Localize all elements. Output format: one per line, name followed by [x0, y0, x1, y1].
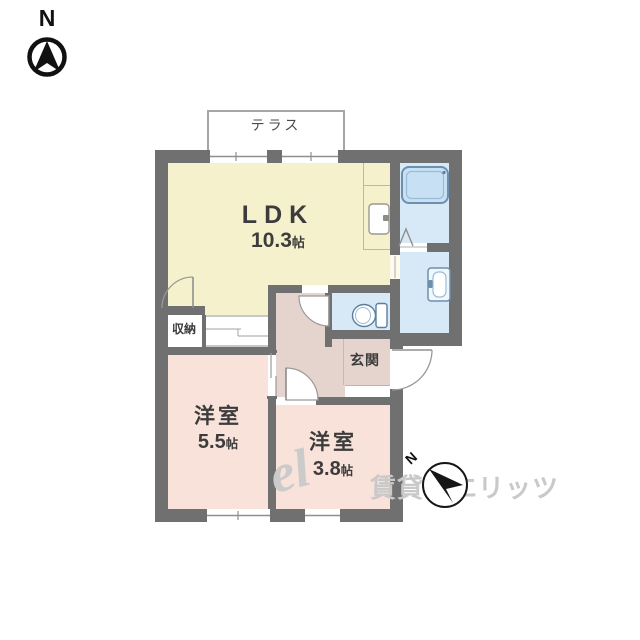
- washroom-floor: [400, 252, 449, 333]
- ldk-size: 10.3帖: [168, 229, 388, 252]
- compass-north-icon: [30, 40, 65, 75]
- wall-segment: [316, 397, 390, 405]
- wall-segment: [155, 150, 462, 163]
- sliding-closet: [206, 315, 268, 347]
- wall-segment: [155, 306, 205, 315]
- storage-label: 収納: [164, 323, 204, 336]
- ldk-size-value: 10.3: [251, 229, 292, 252]
- floor-plan: テラス el 賃貸のエリッツ: [0, 0, 640, 640]
- wall-segment: [427, 243, 449, 252]
- bedroom-right-size-value: 3.8: [313, 458, 341, 480]
- bedroom-right-size-unit: 帖: [341, 464, 353, 478]
- bedroom-left-label: 洋室: [168, 405, 268, 428]
- wall-segment: [268, 285, 276, 353]
- bedroom-right-size: 3.8帖: [276, 458, 390, 480]
- toilet-floor: [332, 293, 390, 330]
- bedroom-left-size-value: 5.5: [198, 431, 226, 453]
- bathroom-floor: [400, 163, 449, 243]
- bedroom-left-size-unit: 帖: [226, 437, 238, 451]
- compass-secondary-north-label: N: [402, 449, 420, 468]
- kitchen-counter-line: [363, 185, 390, 186]
- compass-north-label: N: [31, 5, 63, 32]
- terrace-label: テラス: [207, 118, 345, 133]
- wall-segment: [155, 509, 403, 522]
- front-door-arc: [390, 349, 432, 390]
- bedroom-left-size: 5.5帖: [168, 431, 268, 453]
- entrance-label: 玄関: [338, 353, 392, 368]
- wall-segment: [155, 347, 276, 355]
- watermark-text: 賃貸のエリッツ: [370, 468, 559, 505]
- ldk-size-unit: 帖: [292, 235, 305, 250]
- washroom-door: [390, 252, 400, 282]
- bedroom-right-label: 洋室: [276, 431, 390, 454]
- wall-segment: [397, 333, 462, 346]
- wall-segment: [390, 163, 400, 252]
- wall-segment: [328, 285, 397, 293]
- ldk-label: LDK: [168, 202, 388, 230]
- wall-segment: [325, 330, 397, 339]
- wall-segment: [449, 150, 462, 346]
